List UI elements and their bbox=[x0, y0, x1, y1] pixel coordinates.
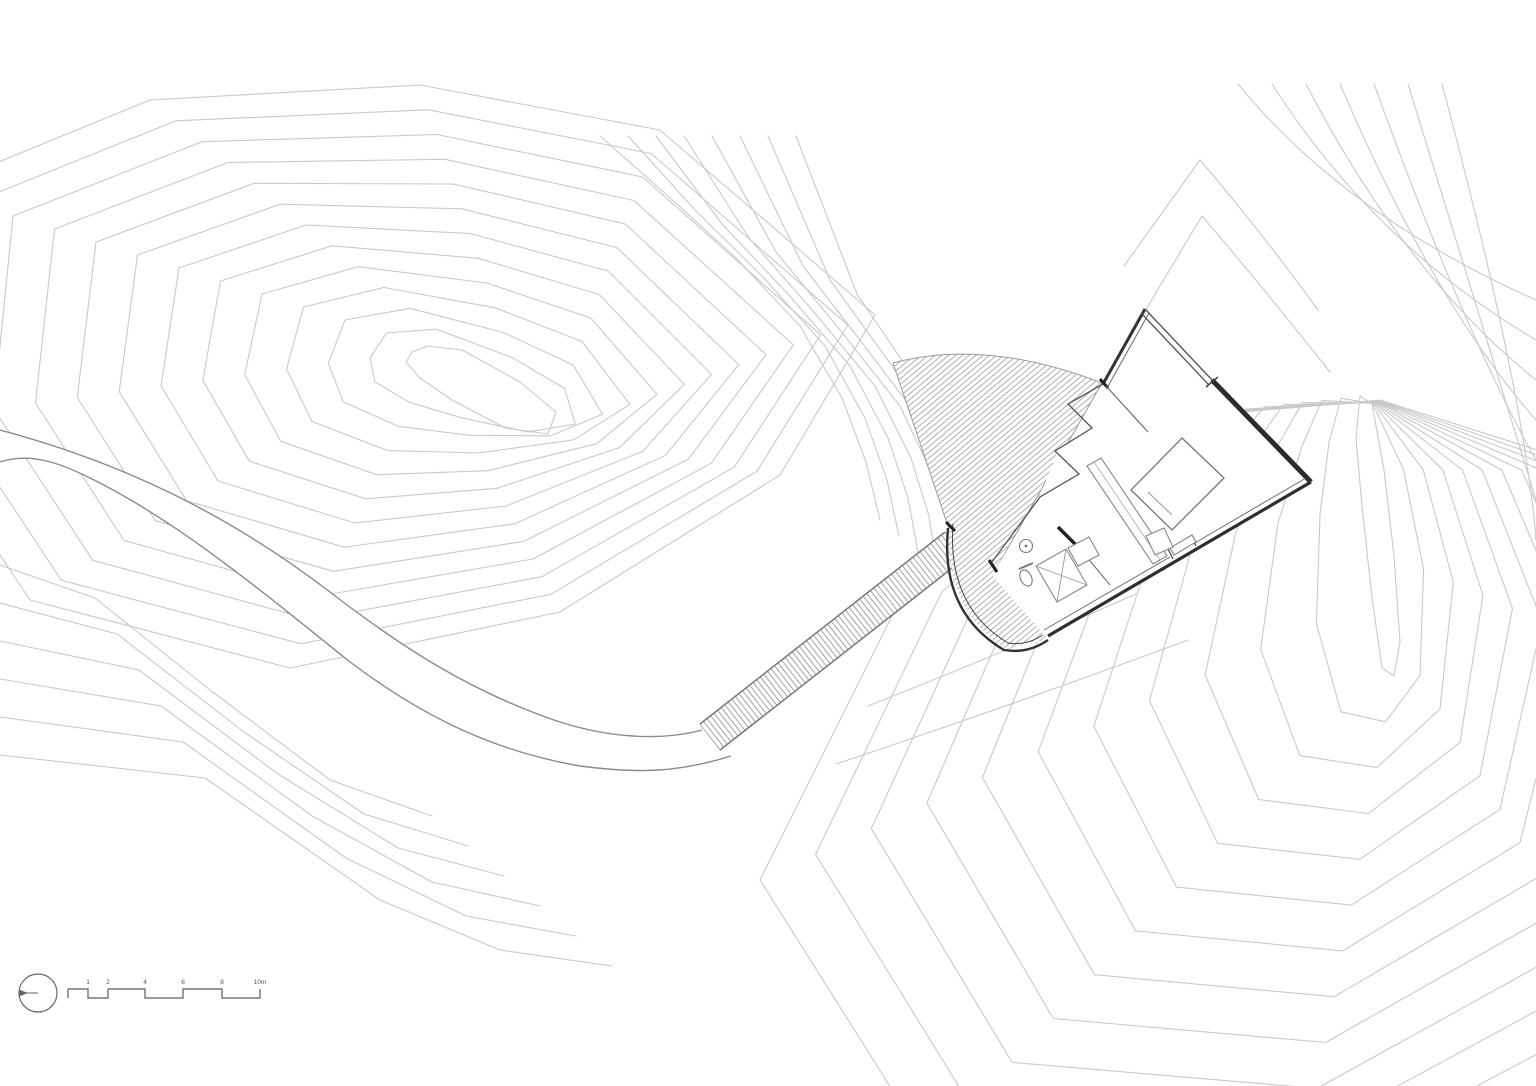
contour-line bbox=[684, 136, 937, 568]
contour-line bbox=[0, 755, 612, 966]
contour-line bbox=[0, 110, 848, 644]
contour-line bbox=[0, 565, 432, 816]
site-plan-canvas: 1 2 4 6 8 10m bbox=[0, 0, 1536, 1086]
contour-line bbox=[0, 717, 576, 936]
scale-tick-label: 4 bbox=[143, 979, 147, 986]
north-pointer bbox=[19, 990, 28, 997]
contour-line bbox=[119, 204, 739, 547]
scale-tick-label: 2 bbox=[106, 979, 110, 986]
road-surface bbox=[0, 430, 731, 771]
contour-field bbox=[0, 84, 1536, 1086]
boardwalk-deck bbox=[700, 532, 965, 750]
boardwalk-steps bbox=[700, 532, 965, 750]
contour-line bbox=[1356, 396, 1400, 676]
sink-drain-dot bbox=[1025, 545, 1028, 548]
contour-line bbox=[287, 288, 630, 454]
contour-line bbox=[328, 308, 602, 436]
contour-line bbox=[36, 159, 794, 595]
contour-line bbox=[203, 246, 685, 499]
scale-tick-label: 8 bbox=[220, 979, 224, 986]
contour-line bbox=[1306, 84, 1536, 380]
contour-line bbox=[370, 329, 575, 432]
scale-tick-label: 6 bbox=[181, 979, 185, 986]
contour-line bbox=[1408, 84, 1536, 500]
site-plan-drawing: 1 2 4 6 8 10m bbox=[0, 0, 1536, 1086]
boardwalk-edge-top bbox=[700, 532, 945, 724]
scale-tick-label: 10m bbox=[254, 979, 267, 986]
access-road bbox=[0, 430, 731, 771]
contour-line bbox=[161, 225, 712, 523]
contour-line bbox=[1238, 84, 1536, 300]
road-edge-lower bbox=[0, 458, 731, 770]
graphic-scale-bar: 1 2 4 6 8 10m bbox=[68, 979, 266, 998]
contour-line bbox=[1316, 398, 1423, 722]
scale-tick-label: 1 bbox=[86, 979, 90, 986]
scale-bar-steps bbox=[68, 989, 260, 998]
contour-line bbox=[1124, 160, 1318, 310]
contour-line bbox=[406, 346, 556, 434]
contour-line bbox=[245, 267, 657, 475]
contour-line bbox=[0, 603, 468, 846]
contour-line bbox=[0, 85, 875, 668]
boardwalk-edge-bottom bbox=[720, 558, 965, 750]
contour-line bbox=[1374, 84, 1536, 460]
north-indicator-icon bbox=[19, 974, 57, 1012]
